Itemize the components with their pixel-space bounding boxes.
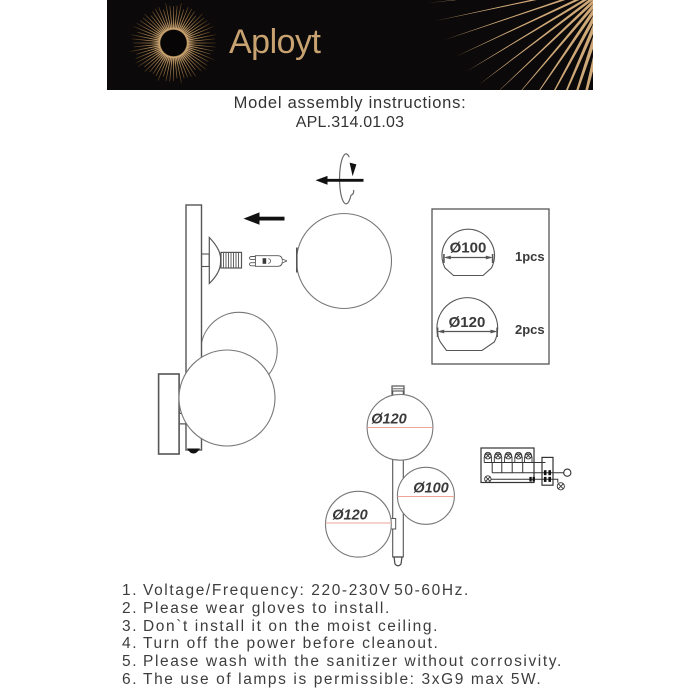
svg-text:Ø100: Ø100 (413, 481, 448, 497)
svg-text:Ø120: Ø120 (449, 314, 486, 331)
svg-text:1pcs: 1pcs (515, 249, 545, 264)
svg-text:Ø120: Ø120 (332, 508, 367, 524)
svg-text:2pcs: 2pcs (515, 322, 545, 337)
svg-text:Ø120: Ø120 (371, 412, 406, 428)
svg-text:Ø100: Ø100 (450, 240, 487, 257)
